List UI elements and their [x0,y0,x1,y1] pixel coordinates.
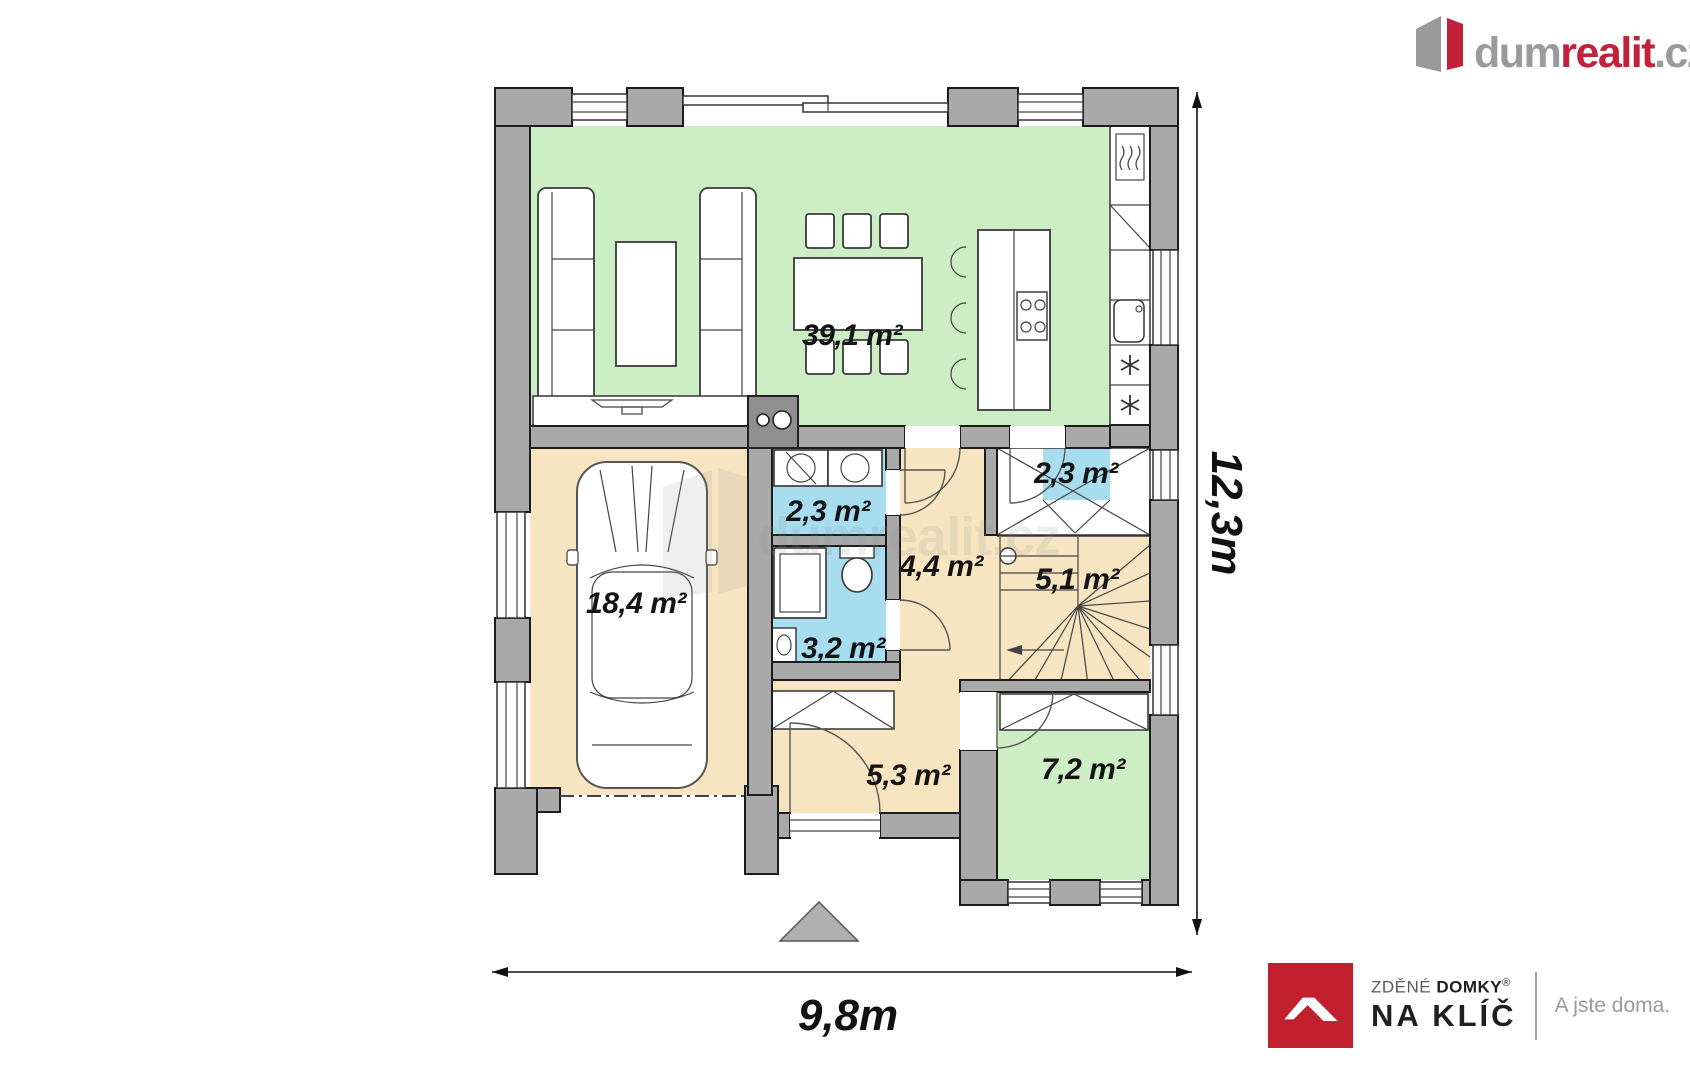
room-label-entry-vestibule: 2,3 m² [1034,457,1118,491]
brand-part-realit: realit [1560,29,1654,77]
floor-plan-page: 39,1 m² 18,4 m² 2,3 m² 3,2 m² 4,4 m² 2,3… [0,0,1690,1080]
brand-part-cz: .cz [1654,29,1690,77]
room-label-bathroom: 3,2 m² [801,632,885,666]
dimension-width-label: 9,8m [798,991,898,1041]
watermark-text: dumrealit.cz [757,506,1060,568]
fireplace-icon [748,396,798,448]
watermark-box-icon [663,468,748,600]
builder-logo: ZDĚNÉ DOMKY® NA KLÍČ A jste doma. [1268,963,1670,1048]
room-label-study: 7,2 m² [1041,753,1125,787]
builder-divider [1535,972,1537,1040]
dimension-height-label: 12,3m [1201,451,1251,576]
builder-line1-bold: DOMKY [1436,978,1502,997]
builder-line2: NA KLÍČ [1371,1000,1517,1033]
builder-tagline: A jste doma. [1555,994,1671,1018]
entrance-triangle-icon [780,902,858,941]
tv-sideboard-icon [533,396,748,426]
washer-dryer-icons [774,450,882,486]
room-label-living-kitchen: 39,1 m² [802,319,902,353]
builder-line1-light: ZDĚNÉ [1371,978,1431,997]
builder-roof-icon [1268,963,1353,1048]
builder-wordmark: ZDĚNÉ DOMKY® NA KLÍČ [1371,978,1517,1032]
dumrealit-logo: dumrealit.cz [1414,10,1690,74]
room-label-corridor: 5,3 m² [866,759,950,793]
dumrealit-box-icon [1414,12,1464,74]
room-label-garage: 18,4 m² [586,587,686,621]
registered-mark: ® [1502,977,1511,989]
room-label-staircase: 5,1 m² [1035,563,1119,597]
brand-part-dum: dum [1474,29,1560,77]
dumrealit-wordmark: dumrealit.cz [1474,34,1690,74]
